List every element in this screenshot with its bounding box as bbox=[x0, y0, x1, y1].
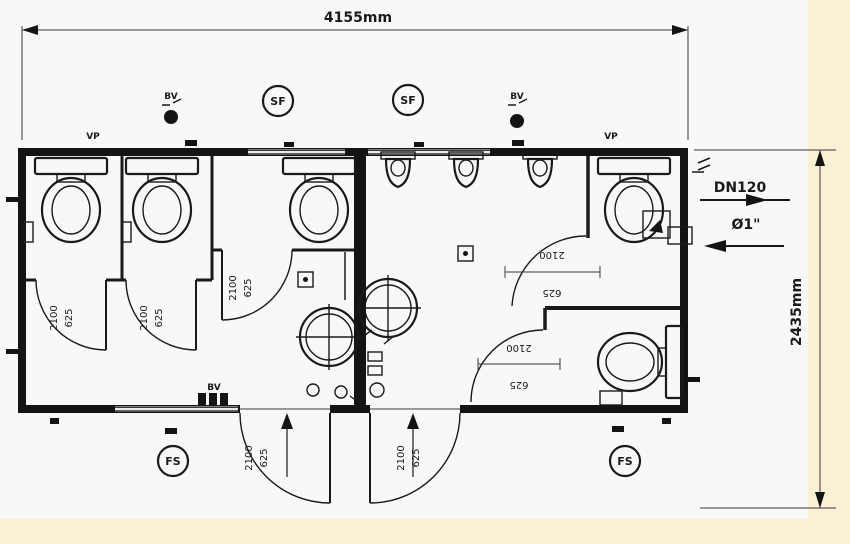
width-dimension-label: 4155mm bbox=[324, 10, 392, 26]
sf-label-1: SF bbox=[270, 95, 285, 108]
fs-label-2: FS bbox=[617, 455, 633, 468]
right-door-2-width: 625 bbox=[509, 379, 528, 390]
stall-door-3-height: 2100 bbox=[228, 275, 239, 300]
floor-plan-canvas: 4155mm 2435mm DN120 Ø1" BV SF SF BV VP V… bbox=[0, 0, 850, 544]
stall-door-1-width: 625 bbox=[64, 308, 75, 327]
right-door-1-width: 625 bbox=[542, 287, 561, 298]
stall-door-3-width: 625 bbox=[243, 278, 254, 297]
center-dividing-wall bbox=[354, 156, 366, 413]
bv-label-1: BV bbox=[164, 92, 177, 102]
pipe-diameter-label: Ø1" bbox=[732, 217, 761, 233]
sf-label-2: SF bbox=[400, 94, 415, 107]
vp-label-1: VP bbox=[86, 132, 100, 142]
vp-label-2: VP bbox=[604, 132, 618, 142]
pipe-dn-label: DN120 bbox=[714, 180, 767, 196]
stall-door-2-width: 625 bbox=[154, 308, 165, 327]
entry-door-right-height: 2100 bbox=[396, 445, 407, 470]
fs-label-1: FS bbox=[165, 455, 181, 468]
depth-dimension-label: 2435mm bbox=[789, 278, 805, 346]
entry-door-left-width: 625 bbox=[259, 448, 270, 467]
stall-door-1-height: 2100 bbox=[49, 305, 60, 330]
floor-plan-page: 4155mm 2435mm DN120 Ø1" BV SF SF BV VP V… bbox=[0, 0, 850, 544]
right-door-2-height: 2100 bbox=[506, 342, 531, 353]
bv-label-3: BV bbox=[207, 383, 220, 393]
entry-door-left-height: 2100 bbox=[244, 445, 255, 470]
entry-door-right-width: 625 bbox=[411, 448, 422, 467]
bv-label-2: BV bbox=[510, 92, 523, 102]
right-door-1-height: 2100 bbox=[539, 249, 564, 260]
stall-door-2-height: 2100 bbox=[139, 305, 150, 330]
